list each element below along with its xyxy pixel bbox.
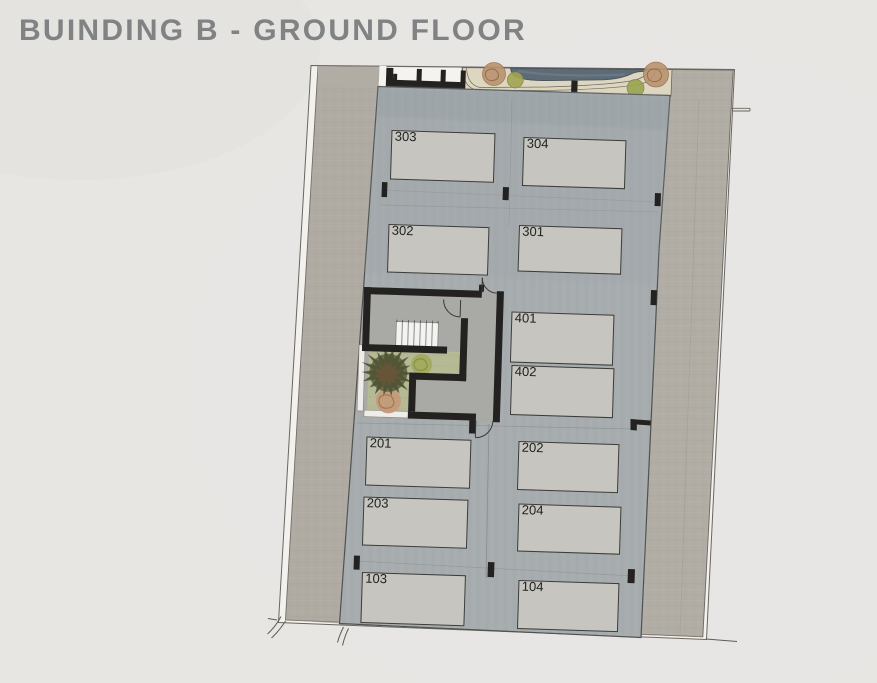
svg-text:204: 204 bbox=[522, 502, 544, 518]
svg-text:303: 303 bbox=[395, 129, 417, 145]
svg-text:304: 304 bbox=[527, 136, 549, 152]
svg-text:103: 103 bbox=[365, 571, 387, 587]
svg-text:203: 203 bbox=[367, 495, 389, 511]
svg-text:401: 401 bbox=[515, 310, 537, 326]
svg-text:104: 104 bbox=[522, 579, 544, 595]
svg-text:301: 301 bbox=[522, 224, 544, 240]
svg-text:302: 302 bbox=[392, 223, 414, 239]
svg-text:202: 202 bbox=[522, 440, 544, 456]
svg-text:201: 201 bbox=[370, 435, 392, 451]
svg-text:BUINDING B - GROUND FLOOR: BUINDING B - GROUND FLOOR bbox=[19, 14, 527, 47]
svg-text:402: 402 bbox=[515, 364, 537, 380]
